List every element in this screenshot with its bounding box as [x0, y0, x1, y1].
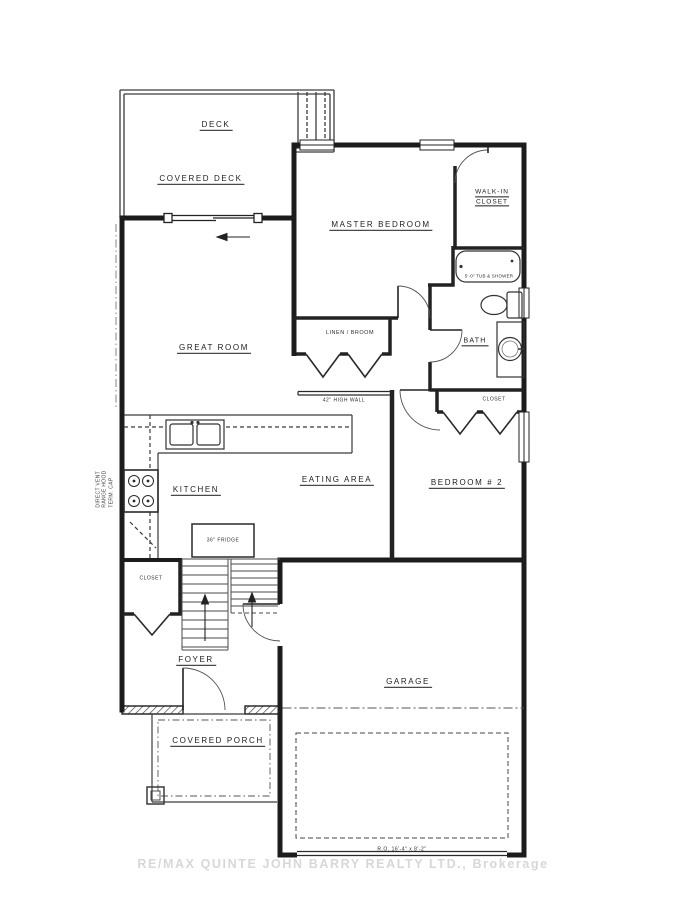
porch-outline: [147, 714, 277, 804]
walk-in-closet-line1: WALK-IN: [475, 188, 509, 197]
half-wall: [298, 392, 392, 396]
room-label-covered-porch: COVERED PORCH: [170, 737, 265, 747]
annotation-half-wall: 42" HIGH WALL: [323, 398, 366, 404]
stove-icon: [124, 470, 158, 512]
room-label-deck: DECK: [200, 121, 233, 131]
room-label-garage: GARAGE: [384, 678, 432, 688]
annotation-garage-door-ro: R.O. 16'-4" x 8'-2": [377, 847, 426, 853]
kitchen-sink-icon: [166, 420, 224, 449]
annotation-fridge: 36" FRIDGE: [207, 538, 240, 544]
room-label-kitchen: KITCHEN: [171, 486, 221, 496]
interior-walls: [122, 166, 524, 614]
vanity-sink-icon: [497, 322, 524, 377]
front-wall-hatch: [122, 706, 280, 714]
sliding-door: [164, 214, 262, 223]
room-label-eating-area: EATING AREA: [300, 476, 374, 486]
room-label-master-bedroom: MASTER BEDROOM: [329, 221, 432, 231]
annotation-vent-note: DIRECT VENT RANGE HOOD TERM. CAP: [96, 470, 115, 507]
room-label-walk-in-closet: WALK-IN CLOSET: [475, 188, 509, 207]
brokerage-watermark: RE/MAX QUINTE JOHN BARRY REALTY LTD., Br…: [137, 857, 548, 871]
room-label-closet-foyer: CLOSET: [139, 576, 162, 582]
room-label-great-room: GREAT ROOM: [177, 344, 251, 354]
doors: [183, 148, 488, 711]
room-label-linen-broom: LINEN / BROOM: [326, 330, 374, 336]
room-label-covered-deck: COVERED DECK: [157, 175, 244, 185]
deck-outline: [120, 90, 334, 218]
vent-note-line2: RANGE HOOD: [102, 470, 108, 507]
floor-plan: DECK COVERED DECK MASTER BEDROOM WALK-IN…: [0, 0, 683, 917]
room-label-bedroom-2: BEDROOM # 2: [429, 479, 505, 489]
annotation-tub: 5'-0" TUB & SHOWER: [465, 275, 513, 280]
vent-note-line3: TERM. CAP: [108, 470, 114, 507]
room-label-closet-bedroom2: CLOSET: [482, 397, 505, 403]
garage-elements: [283, 708, 525, 856]
room-label-foyer: FOYER: [176, 656, 216, 666]
toilet-icon: [481, 292, 522, 318]
walk-in-closet-line2: CLOSET: [475, 198, 509, 207]
slider-direction-arrow: [217, 234, 250, 241]
room-label-bath: BATH: [462, 337, 489, 346]
floorplan-drawing: [0, 0, 683, 917]
